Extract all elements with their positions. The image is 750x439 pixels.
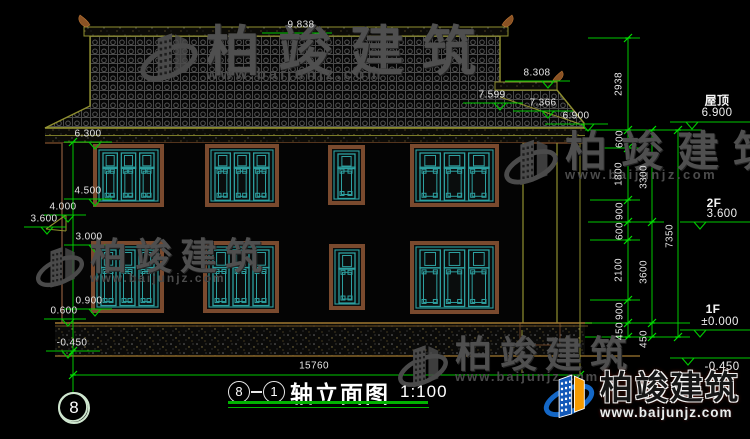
dim-elevations_top-3: 7.366: [529, 98, 556, 109]
dim-elevations_left-4: 3.000: [75, 232, 102, 243]
dim-dims_right_inner-7: 450: [615, 322, 626, 340]
title-axis-end-bubble: 1: [263, 381, 285, 403]
dim-levels_right-1-value: 3.600: [707, 208, 738, 220]
dim-dims_right_inner-1: 600: [615, 130, 626, 148]
dim-elevations_left-2: 4.000: [49, 202, 76, 213]
dim-dims_right_mid-1: 3600: [639, 260, 650, 284]
dim-elevations_top-1: 8.308: [523, 68, 550, 79]
title-axis-start-bubble: 8: [228, 381, 250, 403]
brand-footer-name: 柏竣建筑: [600, 371, 740, 404]
dim-dims_right_inner-0: 2938: [614, 72, 625, 96]
brand-footer-site: www.baijunjz.com: [600, 405, 740, 420]
cad-elevation-canvas: 柏竣建筑 www.baijunjz.com 柏竣建筑 www.baijunjz.…: [0, 0, 750, 439]
dim-elevations_top-0: 9.838: [287, 20, 314, 31]
dim-elevations_left-3: 3.600: [30, 214, 57, 225]
dim-dim_bottom: 15760: [299, 361, 329, 372]
dim-elevations_left-5: 0.900: [75, 296, 102, 307]
dim-dims_right_inner-6: 900: [615, 302, 626, 320]
dim-elevations_left-7: -0.450: [57, 338, 88, 349]
dim-levels_right-0-value: 6.900: [702, 107, 733, 119]
dim-dims_right_inner-4: 600: [615, 222, 626, 240]
title-underline-thin: [228, 407, 429, 408]
dim-dims_right_mid-0: 3300: [639, 165, 650, 189]
baijun-logo-color-icon: [542, 366, 596, 424]
dim-elevations_left-0: 6.300: [74, 129, 101, 140]
dim-dims_right_outer-0: 7350: [665, 224, 676, 248]
title-scale: 1:100: [400, 382, 448, 402]
dim-dims_right_mid-2: 450: [639, 330, 650, 348]
dim-elevations_top-2: 7.599: [478, 90, 505, 101]
dim-dims_right_inner-5: 2100: [614, 258, 625, 282]
axis-bubble-8: 8: [58, 392, 90, 424]
dim-dims_right_inner-3: 900: [615, 202, 626, 220]
brand-footer: 柏竣建筑 www.baijunjz.com: [542, 366, 740, 424]
dim-elevations_left-1: 4.500: [74, 186, 101, 197]
title-underline-thick: [228, 401, 428, 404]
dim-levels_right-0-name: 屋顶: [705, 92, 730, 109]
title-axis-dash: [251, 391, 262, 393]
dim-levels_right-2-name: 1F: [706, 302, 721, 316]
dim-dims_right_inner-2: 1800: [614, 162, 625, 186]
dim-elevations_top-4: 6.900: [562, 111, 589, 122]
dim-levels_right-2-value: ±0.000: [701, 316, 739, 328]
dim-elevations_left-6: 0.600: [50, 306, 77, 317]
